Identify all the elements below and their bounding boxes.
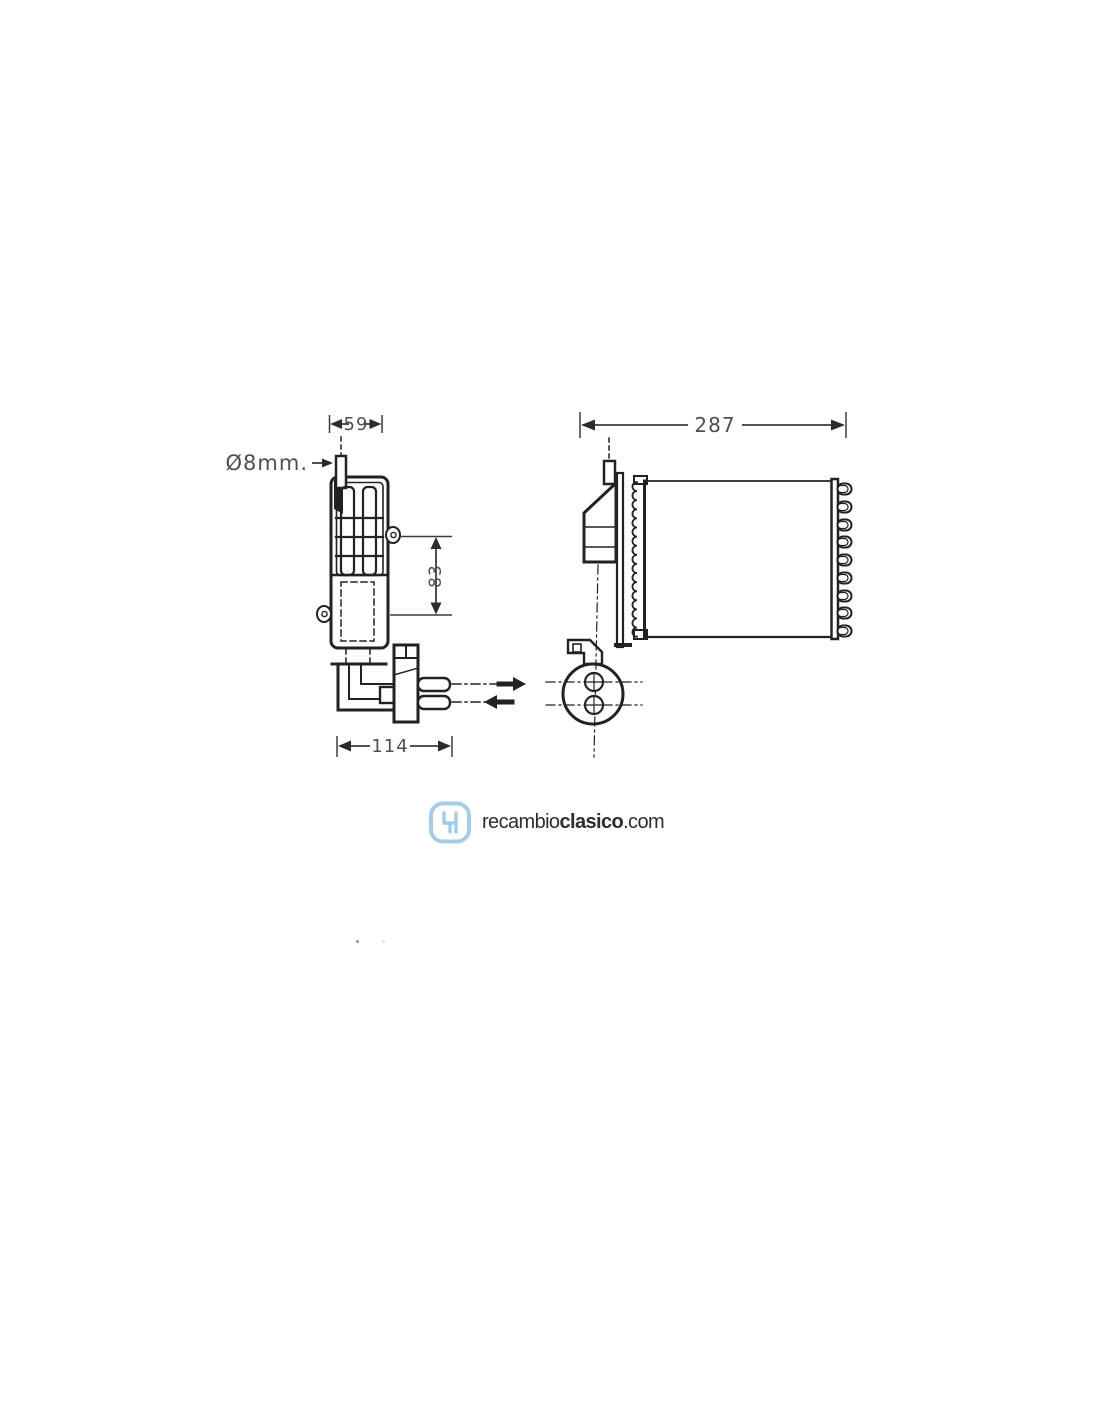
- side-tank: [584, 484, 616, 562]
- side-view: [317, 437, 400, 665]
- brand-domain-suffix: .com: [623, 811, 664, 833]
- inlet-pipe: [336, 456, 346, 488]
- outlet-pipe-bottom: [418, 696, 450, 709]
- flow-arrow-out: [499, 677, 526, 691]
- fin-tabs: [838, 484, 852, 637]
- flange-plate: [617, 473, 623, 647]
- port-end-view: [546, 565, 642, 757]
- dimension-59: 59: [330, 414, 383, 435]
- watermark-text: recambioclasico.com: [482, 811, 664, 834]
- mount-ear-right: [386, 527, 400, 543]
- dimension-114: 114: [337, 736, 452, 757]
- watermark-logo: recambioclasico.com: [427, 800, 664, 845]
- brand-part-regular: recambio: [482, 811, 559, 833]
- dim-label-diameter: Ø8mm.: [226, 451, 308, 475]
- dimension-83: 83: [390, 537, 452, 616]
- flow-arrow-in: [484, 695, 512, 709]
- front-inlet-pipe: [604, 461, 615, 484]
- scan-speck: [356, 940, 359, 943]
- dim-label-83: 83: [426, 564, 446, 588]
- gear-shift-icon: [427, 800, 473, 845]
- dimension-287: 287: [580, 412, 846, 438]
- pipe-diameter-callout: Ø8mm.: [226, 451, 333, 475]
- mount-ear-left: [317, 606, 331, 622]
- dim-label-114: 114: [371, 736, 408, 757]
- front-view: [584, 438, 852, 647]
- elbow-inner-2: [361, 666, 393, 684]
- brand-part-bold: clasico: [559, 811, 623, 833]
- outlet-pipe-top: [418, 678, 450, 691]
- dim-label-287: 287: [694, 413, 735, 437]
- dim-label-59: 59: [344, 414, 369, 435]
- elbow-inner-1: [349, 666, 381, 699]
- product-drawing-page: 59 Ø8mm. 83 114: [0, 0, 1100, 1422]
- pipe-fitting-assembly: [332, 645, 526, 722]
- scan-speck: [382, 940, 385, 943]
- technical-drawing-svg: 59 Ø8mm. 83 114: [0, 0, 1100, 1422]
- gasket-strip: [632, 476, 647, 639]
